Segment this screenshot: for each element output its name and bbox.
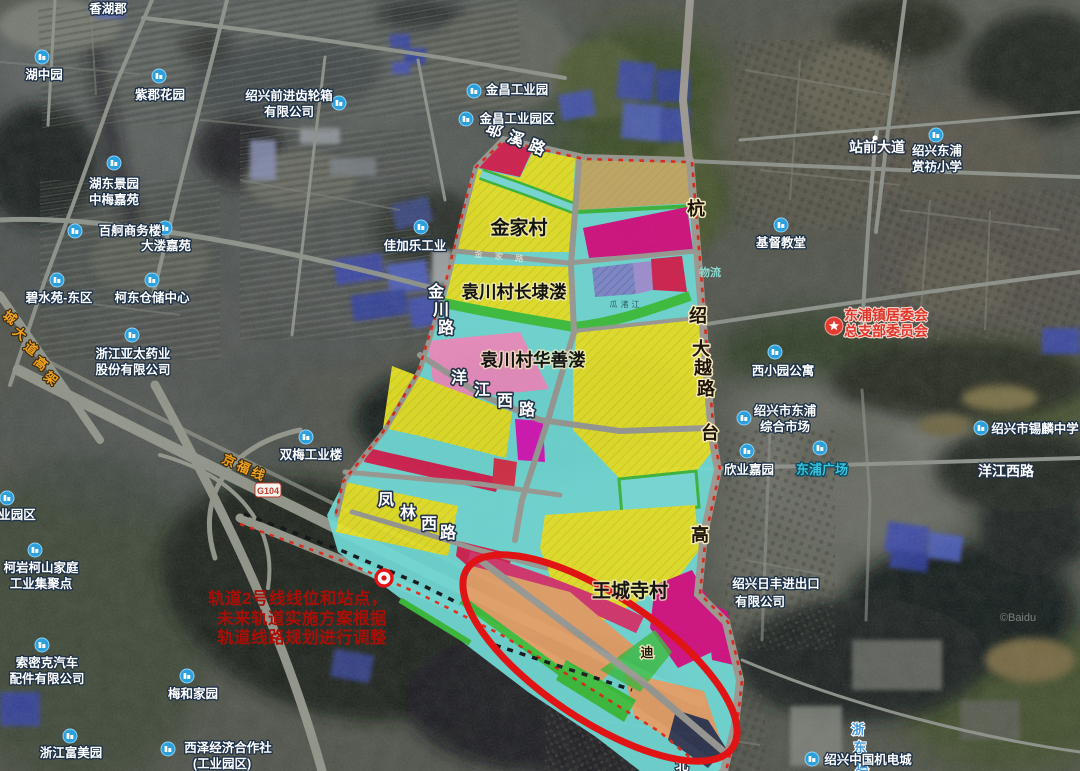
svg-text:欣业嘉园: 欣业嘉园 xyxy=(724,462,774,477)
svg-text:江: 江 xyxy=(474,381,490,399)
svg-text:工业集聚点: 工业集聚点 xyxy=(10,576,73,591)
svg-text:碧水苑-东区: 碧水苑-东区 xyxy=(25,290,93,305)
svg-text:东浦广场: 东浦广场 xyxy=(796,462,848,477)
svg-text:川: 川 xyxy=(432,302,449,319)
svg-text:西: 西 xyxy=(497,392,513,410)
svg-text:洋: 洋 xyxy=(451,368,467,387)
svg-text:越: 越 xyxy=(693,357,713,378)
svg-text:袁川村长埭溇: 袁川村长埭溇 xyxy=(461,282,567,302)
svg-text:绍: 绍 xyxy=(689,305,707,326)
svg-text:西小园公寓: 西小园公寓 xyxy=(752,363,815,378)
svg-text:林: 林 xyxy=(400,503,416,522)
svg-text:紫郡花园: 紫郡花园 xyxy=(135,87,185,102)
svg-text:中梅嘉苑: 中梅嘉苑 xyxy=(89,192,140,207)
svg-text:湖中园: 湖中园 xyxy=(25,67,63,82)
svg-text:金家村: 金家村 xyxy=(489,216,547,239)
svg-text:绍兴市东浦: 绍兴市东浦 xyxy=(754,403,817,418)
svg-text:绍兴市锡麟中学: 绍兴市锡麟中学 xyxy=(991,421,1079,436)
svg-text:湖东景园: 湖东景园 xyxy=(89,176,139,191)
svg-text:路: 路 xyxy=(697,378,716,399)
svg-text:西泽经济合作社: 西泽经济合作社 xyxy=(184,740,272,755)
svg-text:物流: 物流 xyxy=(699,265,721,279)
svg-text:(工业园区): (工业园区) xyxy=(193,756,251,771)
svg-text:金昌工业园: 金昌工业园 xyxy=(485,82,549,97)
svg-text:未来轨道实施方案根据: 未来轨道实施方案根据 xyxy=(217,608,387,628)
svg-text:大溇嘉苑: 大溇嘉苑 xyxy=(141,238,192,253)
svg-text:浙江亚太药业: 浙江亚太药业 xyxy=(95,346,171,361)
svg-text:凤: 凤 xyxy=(378,491,394,509)
svg-text:百舸商务楼: 百舸商务楼 xyxy=(99,223,162,238)
svg-text:绍兴前进齿轮箱: 绍兴前进齿轮箱 xyxy=(245,88,333,103)
svg-text:杭: 杭 xyxy=(687,198,705,219)
svg-text:路: 路 xyxy=(438,318,455,337)
svg-text:王城寺村: 王城寺村 xyxy=(592,579,668,602)
svg-text:大: 大 xyxy=(692,338,710,359)
svg-text:浙: 浙 xyxy=(851,722,864,737)
svg-text:西: 西 xyxy=(421,515,437,533)
svg-text:赏祊小学: 赏祊小学 xyxy=(912,159,963,174)
svg-text:路: 路 xyxy=(440,523,457,542)
svg-text:柯东仓储中心: 柯东仓储中心 xyxy=(114,290,190,305)
svg-text:G104: G104 xyxy=(257,486,279,496)
svg-text:有限公司: 有限公司 xyxy=(264,104,314,119)
svg-text:有限公司: 有限公司 xyxy=(735,594,785,609)
svg-text:综合市场: 综合市场 xyxy=(760,419,810,434)
svg-text:洋江西路: 洋江西路 xyxy=(978,463,1035,479)
svg-text:台: 台 xyxy=(701,422,719,443)
svg-text:金昌工业园区: 金昌工业园区 xyxy=(478,111,555,126)
svg-text:柯岩柯山家庭: 柯岩柯山家庭 xyxy=(3,560,79,575)
svg-text:东浦镇居委会: 东浦镇居委会 xyxy=(844,307,929,323)
svg-text:绍兴日丰进出口: 绍兴日丰进出口 xyxy=(732,576,820,591)
svg-text:总支部委员会: 总支部委员会 xyxy=(844,323,929,339)
svg-text:股份有限公司: 股份有限公司 xyxy=(95,362,170,377)
svg-text:梅和家园: 梅和家园 xyxy=(168,686,218,701)
svg-text:袁川村华善溇: 袁川村华善溇 xyxy=(480,350,586,370)
svg-text:香湖郡: 香湖郡 xyxy=(88,1,127,16)
svg-text:双梅工业楼: 双梅工业楼 xyxy=(279,447,343,462)
svg-text:索密克汽车: 索密克汽车 xyxy=(16,655,79,670)
svg-text:业园区: 业园区 xyxy=(0,507,36,522)
svg-text:©Baidu: ©Baidu xyxy=(1000,612,1036,624)
svg-text:绍兴东浦: 绍兴东浦 xyxy=(912,143,963,158)
svg-text:路: 路 xyxy=(519,400,536,419)
svg-text:金: 金 xyxy=(427,282,445,301)
svg-text:基督教堂: 基督教堂 xyxy=(755,235,806,250)
svg-text:浙江富美园: 浙江富美园 xyxy=(40,745,103,760)
svg-text:绍兴中国机电城: 绍兴中国机电城 xyxy=(824,752,912,767)
svg-text:配件有限公司: 配件有限公司 xyxy=(9,671,84,686)
svg-text:轨道2号线线位和站点，: 轨道2号线线位和站点， xyxy=(208,588,388,608)
svg-text:轨道线路规划进行调整: 轨道线路规划进行调整 xyxy=(217,627,387,647)
svg-text:佳加乐工业: 佳加乐工业 xyxy=(384,238,447,253)
svg-text:站前大道: 站前大道 xyxy=(849,139,905,155)
svg-text:高: 高 xyxy=(691,524,709,545)
